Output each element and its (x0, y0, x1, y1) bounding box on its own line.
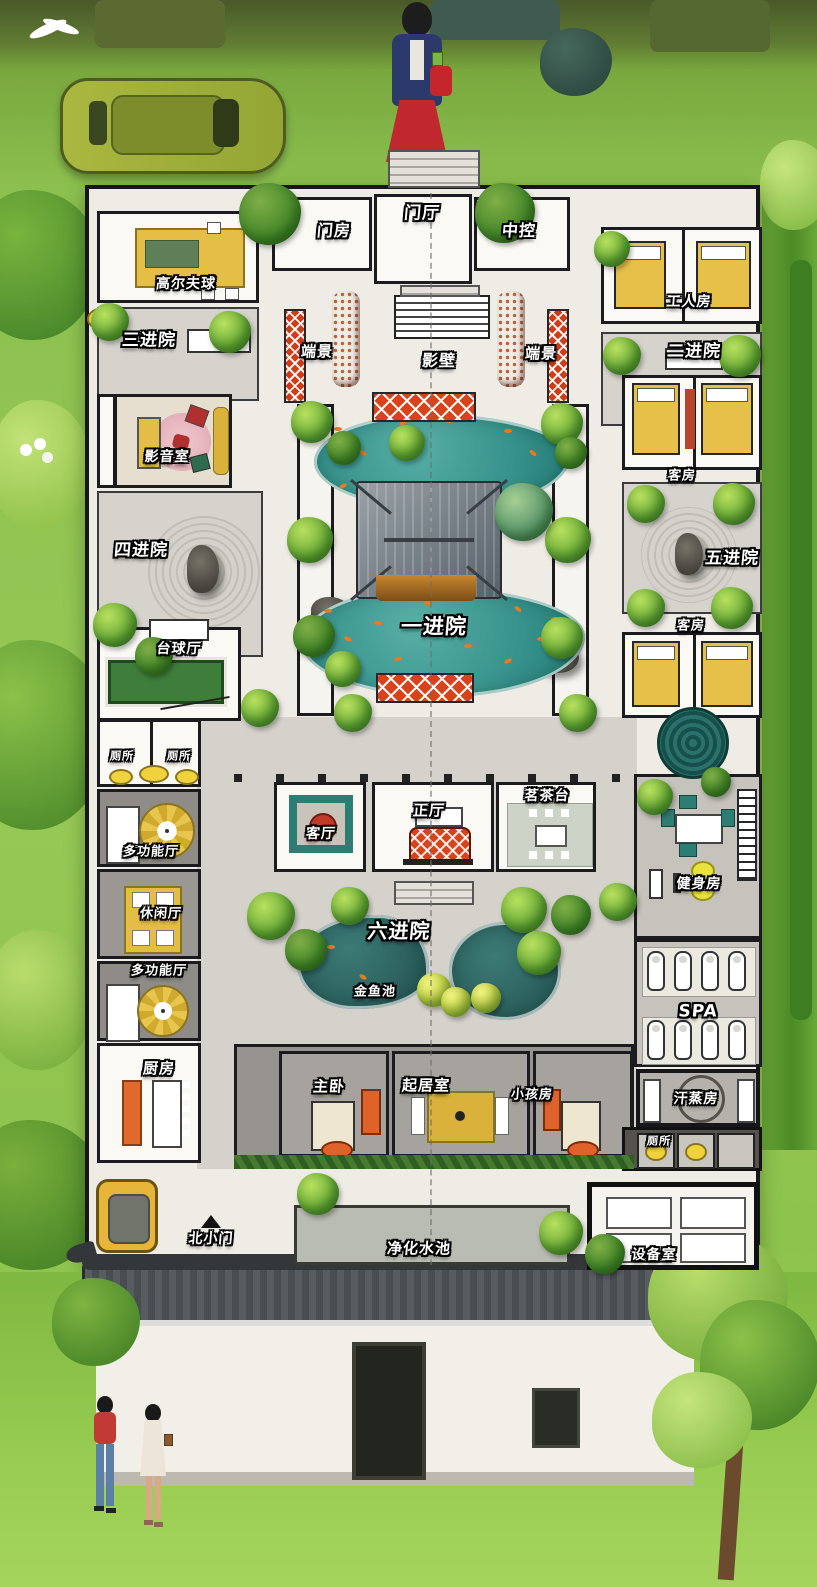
koi-fish (324, 609, 332, 613)
shoe (144, 1520, 153, 1525)
label-vista-right: 端景 (524, 347, 557, 362)
sink-oval (175, 769, 199, 785)
av-table (213, 407, 229, 475)
toilet-fixture (685, 1143, 707, 1161)
top-building-block (95, 0, 225, 48)
drink-cup (164, 1434, 173, 1446)
label-main-hall: 正厅 (412, 804, 445, 819)
label-courtyard-four: 四进院 (113, 543, 168, 560)
label-workers-room: 工人房 (666, 295, 712, 309)
tea-table (535, 825, 567, 847)
room-main-hall (372, 782, 494, 872)
label-entrance-hall: 门厅 (403, 206, 440, 223)
label-lounge: 休闲厅 (139, 908, 182, 921)
gym-equipment (649, 869, 663, 899)
gym-chair (679, 795, 697, 809)
label-control-room: 中控 (501, 223, 536, 239)
massage-bed (701, 1020, 719, 1060)
label-courtyard-five: 五进院 (704, 551, 759, 568)
massage-bed (674, 1020, 692, 1060)
kitchen-table (152, 1080, 182, 1148)
flower (42, 452, 53, 463)
gym-table (675, 814, 723, 844)
pavilion-interior-glow (376, 575, 476, 601)
label-gym: 健身房 (676, 877, 722, 891)
bed (632, 383, 680, 455)
equipment-panel (606, 1197, 672, 1229)
tree (495, 483, 553, 541)
pedestrian-woman-dress (138, 1404, 168, 1574)
sitting-sofa (495, 1097, 509, 1135)
tea-chairs (529, 809, 571, 817)
cypress-tree (332, 291, 360, 387)
av-chair-green (189, 453, 210, 473)
golf-mat (145, 240, 199, 268)
label-vista-left: 端景 (300, 345, 333, 360)
woman-shirt (410, 40, 424, 80)
label-multi-upper: 多功能厅 (122, 846, 179, 859)
label-guest-room-lower: 客房 (676, 620, 705, 633)
label-toilet-b: 厕所 (167, 751, 192, 762)
lounge-cushion (156, 930, 174, 946)
label-goldfish-pond: 金鱼池 (353, 986, 396, 999)
hedge-strip (234, 1155, 634, 1169)
top-building-block (650, 0, 770, 52)
equipment-panel (680, 1233, 746, 1263)
red-bridge-south (376, 673, 474, 703)
screen-wall-steps (400, 285, 480, 297)
label-billiards: 台球厅 (156, 642, 202, 656)
pavilion-ridge (384, 538, 475, 542)
woman-cup (432, 52, 443, 66)
label-courtyard-six: 六进院 (367, 921, 432, 941)
flower (34, 438, 46, 450)
zen-rock (675, 533, 703, 575)
pedestrian-woman-red (92, 1396, 118, 1566)
leg (146, 1476, 152, 1520)
bus-roof (108, 1194, 150, 1244)
car-roof (111, 95, 225, 155)
margin-tree (0, 930, 95, 1070)
label-living-room: 客厅 (305, 827, 336, 841)
sitting-sofa (411, 1097, 425, 1135)
red-bridge-north (372, 392, 476, 422)
bed (632, 641, 680, 707)
top-round-tree (540, 28, 612, 96)
red-runner (685, 389, 695, 449)
woman-hair (402, 2, 432, 36)
jeans-leg (106, 1444, 114, 1506)
shoe (94, 1506, 104, 1511)
label-sitting-room: 起居室 (401, 1079, 450, 1094)
gate-window (532, 1388, 580, 1448)
orange-sofa (361, 1089, 381, 1135)
massage-bed (728, 951, 746, 991)
massage-bed (647, 951, 665, 991)
car-top-view (60, 78, 286, 174)
massage-bed (647, 1020, 665, 1060)
label-kitchen: 厨房 (142, 1062, 175, 1077)
desk (106, 984, 140, 1042)
hall-red-sofa (409, 827, 471, 863)
tea-chairs (529, 851, 571, 859)
jeans-leg (96, 1444, 104, 1506)
golf-chair (207, 222, 221, 234)
guest-room-divider (693, 635, 696, 715)
shoe (106, 1508, 116, 1513)
koi-fish (464, 644, 472, 648)
label-north-gate: 北小门 (188, 1232, 234, 1246)
red-top (94, 1412, 116, 1444)
room-av (114, 394, 232, 488)
koi-fish (327, 945, 335, 949)
margin-tree (760, 140, 817, 230)
pavilion-ridge-diagonal (350, 479, 392, 515)
column-row (234, 774, 634, 782)
massage-bed (701, 951, 719, 991)
label-courtyard-two: 二进院 (666, 344, 721, 361)
gym-chair (721, 809, 735, 827)
sink-oval (109, 769, 133, 785)
tree (711, 587, 753, 629)
screen-wall-structure (394, 295, 490, 339)
label-purification-pool: 净化水池 (386, 1242, 451, 1257)
label-spa: SPA (678, 1004, 719, 1021)
floor-plan-canvas: 门房 门厅 中控 高尔夫球 工人房 三进院 二进院 端景 端景 影壁 影音室 客… (85, 185, 760, 1270)
hair (145, 1404, 161, 1422)
entrance-steps (388, 150, 480, 188)
koi-fish (504, 429, 512, 433)
golf-chair (225, 288, 239, 300)
label-toilet-c: 厕所 (647, 1136, 672, 1147)
car-windshield (213, 99, 239, 147)
round-table (137, 985, 189, 1037)
shoe (154, 1522, 163, 1527)
kitchen-chairs (182, 1082, 190, 1142)
gym-chair (679, 843, 697, 857)
sink-oval (139, 765, 169, 783)
gate-doorway (352, 1342, 426, 1480)
leg (155, 1476, 161, 1520)
label-guest-room-upper: 客房 (667, 470, 696, 483)
sauna-bench (643, 1079, 661, 1123)
zen-rock (187, 545, 219, 593)
equipment-panel (680, 1197, 746, 1229)
massage-bed (674, 951, 692, 991)
massage-bed (728, 1020, 746, 1060)
label-kids-room: 小孩房 (510, 1089, 553, 1102)
label-master-bedroom: 主卧 (312, 1080, 345, 1095)
sauna-bench (737, 1079, 755, 1123)
label-courtyard-one: 一进院 (400, 617, 468, 638)
gate-eave-line (90, 1320, 700, 1326)
kitchen-counter (122, 1080, 142, 1146)
sitting-dot (455, 1111, 465, 1121)
stairs (737, 789, 757, 881)
label-av-room: 影音室 (144, 450, 190, 464)
illustrated-floor-plan-scene: { "rooms": { "gate_room": "门房", "entranc… (0, 0, 817, 1587)
label-sauna: 汗蒸房 (673, 1092, 719, 1106)
woman-bag (430, 66, 452, 96)
flower (20, 444, 32, 456)
dress (140, 1420, 166, 1476)
tree (539, 1211, 583, 1255)
margin-tree-band-shadow (790, 260, 812, 1020)
bed (701, 383, 753, 455)
car-rear-window (89, 101, 107, 145)
label-courtyard-three: 三进院 (121, 333, 176, 350)
label-equipment-room: 设备室 (631, 1248, 677, 1262)
label-gate-room: 门房 (316, 223, 351, 239)
label-toilet-a: 厕所 (110, 751, 135, 762)
toilet-cell (717, 1133, 755, 1169)
bed (701, 641, 753, 707)
cypress-tree (497, 291, 525, 387)
north-gate-arrow (201, 1215, 221, 1228)
label-screen-wall: 影壁 (421, 353, 456, 369)
label-golf-room: 高尔夫球 (155, 277, 216, 291)
label-tea-station: 茗茶台 (524, 789, 570, 803)
lounge-cushion (132, 930, 150, 946)
hall-base (403, 859, 473, 865)
courtyard-steps (394, 881, 474, 905)
bird-icon (28, 12, 76, 52)
label-multi-lower: 多功能厅 (130, 965, 187, 978)
tree (627, 589, 665, 627)
flower-cluster (20, 438, 60, 468)
shuttle-bus (96, 1179, 158, 1253)
